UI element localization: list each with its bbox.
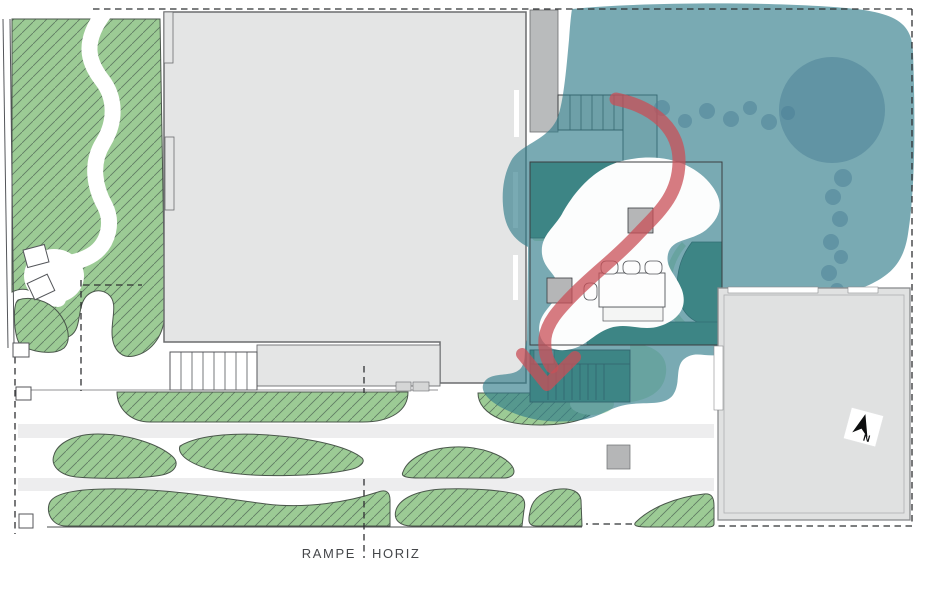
site-plan-canvas: N RAMPE HORIZ: [0, 0, 940, 597]
planting-bed: [395, 489, 524, 526]
neighbor-building: N: [714, 287, 910, 520]
building-footprint: [164, 12, 526, 383]
terrace: [257, 345, 440, 386]
annex-volume: [530, 10, 558, 132]
planting-bed: [179, 434, 363, 475]
planting-bed: [117, 392, 408, 422]
planting-bed: [529, 489, 582, 526]
paver-square: [607, 445, 630, 469]
survey-marker: [16, 387, 31, 400]
entry-stair: [170, 352, 257, 390]
left-garden: [3, 13, 165, 356]
planting-bed: [402, 447, 514, 478]
bench: [603, 307, 663, 321]
site-plan: N RAMPE HORIZ: [0, 0, 940, 597]
planting-bed: [48, 489, 390, 526]
ramp-label-right: HORIZ: [372, 546, 420, 561]
planting-bed: [53, 434, 176, 478]
ramp-label-left: RAMPE: [302, 546, 356, 561]
survey-marker: [13, 343, 29, 357]
tree-crown: [779, 57, 885, 163]
dining-table: [599, 273, 665, 307]
planting-bed: [635, 494, 714, 527]
survey-marker: [19, 514, 33, 528]
annotation: RAMPE HORIZ: [302, 546, 421, 561]
